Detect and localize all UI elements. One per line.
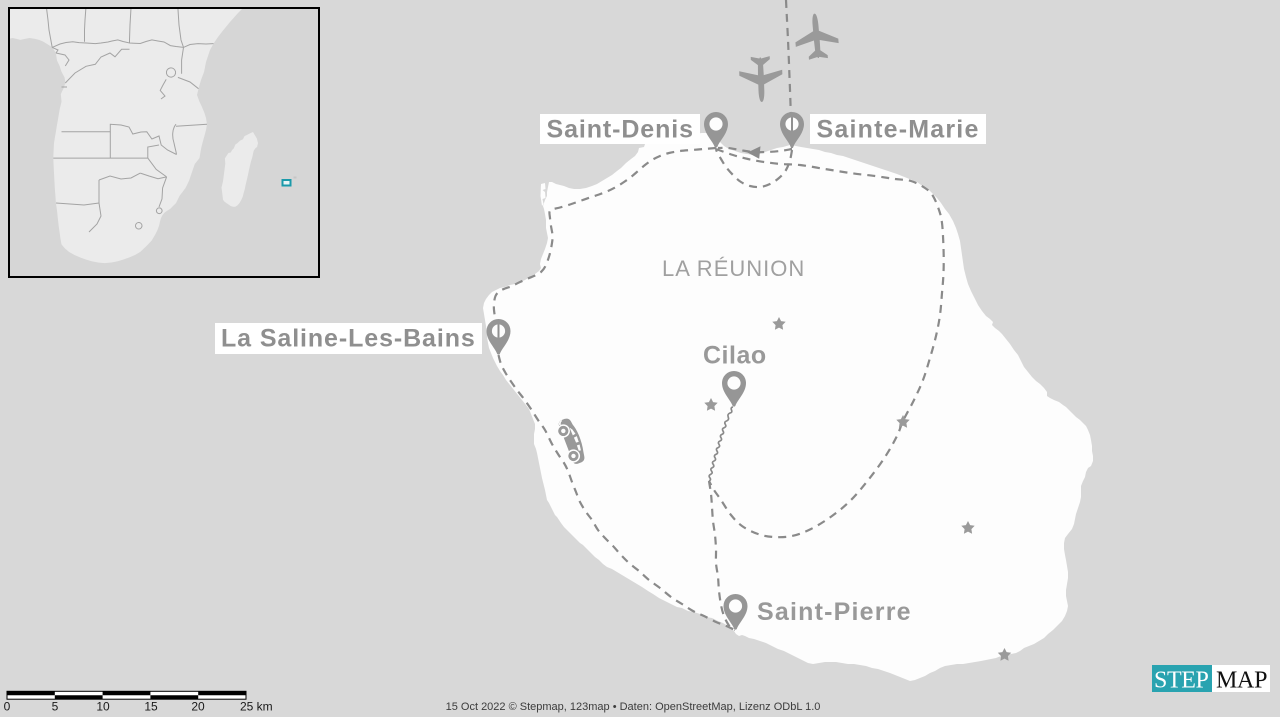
svg-text:Saint-Pierre: Saint-Pierre	[757, 598, 912, 626]
svg-text:0: 0	[4, 700, 11, 714]
svg-text:5: 5	[52, 700, 59, 714]
svg-text:15 Oct 2022 © Stepmap, 123map: 15 Oct 2022 © Stepmap, 123map • Daten: O…	[446, 701, 821, 713]
svg-text:MAP: MAP	[1216, 668, 1267, 694]
svg-text:Saint-Denis: Saint-Denis	[547, 116, 694, 144]
svg-text:20: 20	[191, 700, 205, 714]
svg-text:10: 10	[96, 700, 110, 714]
svg-text:STEP: STEP	[1154, 668, 1208, 694]
svg-text:LA RÉUNION: LA RÉUNION	[662, 256, 805, 281]
svg-text:Sainte-Marie: Sainte-Marie	[817, 116, 980, 144]
svg-text:15: 15	[144, 700, 158, 714]
svg-text:Cilao: Cilao	[703, 342, 767, 370]
svg-text:25 km: 25 km	[240, 700, 273, 714]
svg-text:La Saline-Les-Bains: La Saline-Les-Bains	[221, 325, 476, 353]
